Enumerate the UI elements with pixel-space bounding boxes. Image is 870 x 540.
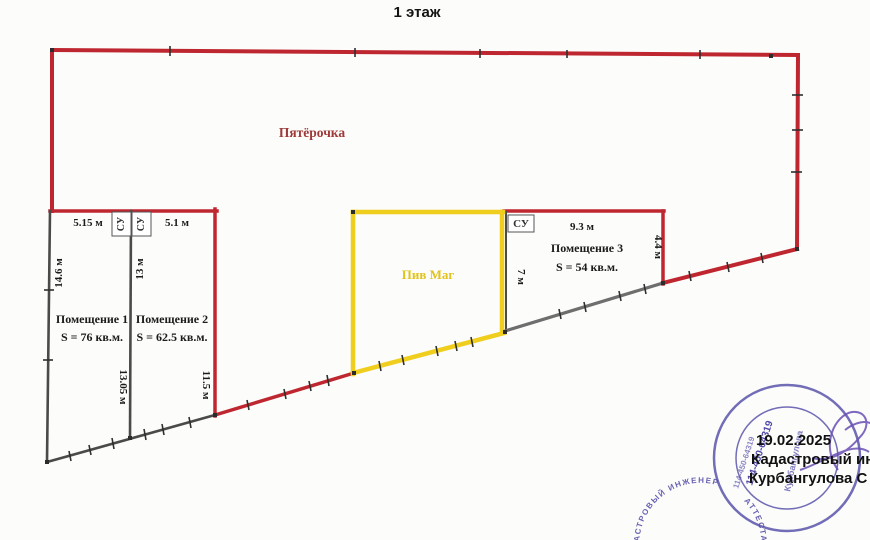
floor-plan-page: СУ СУ СУ 1 этаж Пятёрочка Пив Маг Помеще… [0,0,870,540]
su-box-3-label: СУ [513,218,529,230]
floor-plan-svg: СУ СУ СУ 1 этаж Пятёрочка Пив Маг Помеще… [0,0,870,540]
room2-area: S = 62.5 кв.м. [136,330,207,344]
dim-4-4m: 4.4 м [652,235,664,260]
tick-marks [43,46,803,461]
yellow-room-walls [353,212,504,374]
stamp-engineer-line: Кадастровый ин [751,451,870,468]
outer-boundary [52,50,798,283]
corner-dots [45,48,799,464]
dim-7m: 7 м [515,269,527,285]
room1-name: Помещение 1 [56,312,128,326]
su-box-1-label: СУ [116,216,127,231]
dim-9-3m: 9.3 м [570,221,595,233]
dim-13-05m: 13.05 м [117,370,129,406]
stamp-date: 19.02.2025 [756,432,831,449]
dim-5-15m: 5.15 м [73,217,103,229]
store-pyaterochka-label: Пятёрочка [279,125,346,140]
grey-walls [505,283,663,331]
room3-area: S = 54 кв.м. [556,260,618,274]
dim-11-5m: 11.5 м [200,371,212,400]
dim-14-6m: 14.6 м [53,258,65,288]
room-pivmag-label: Пив Маг [402,267,455,282]
dim-13m: 13 м [134,258,146,280]
room2-name: Помещение 2 [136,312,208,326]
room1-area: S = 76 кв.м. [61,330,123,344]
room3-name: Помещение 3 [551,241,623,255]
stamp-name-line: Курбангулова С [749,470,868,487]
dim-5-1m: 5.1 м [165,217,190,229]
page-title: 1 этаж [394,4,441,21]
su-box-2-label: СУ [136,216,147,231]
cadastral-stamp: АТТЕСТАТ 02-14-1131 квалификационный КАД… [632,385,870,540]
